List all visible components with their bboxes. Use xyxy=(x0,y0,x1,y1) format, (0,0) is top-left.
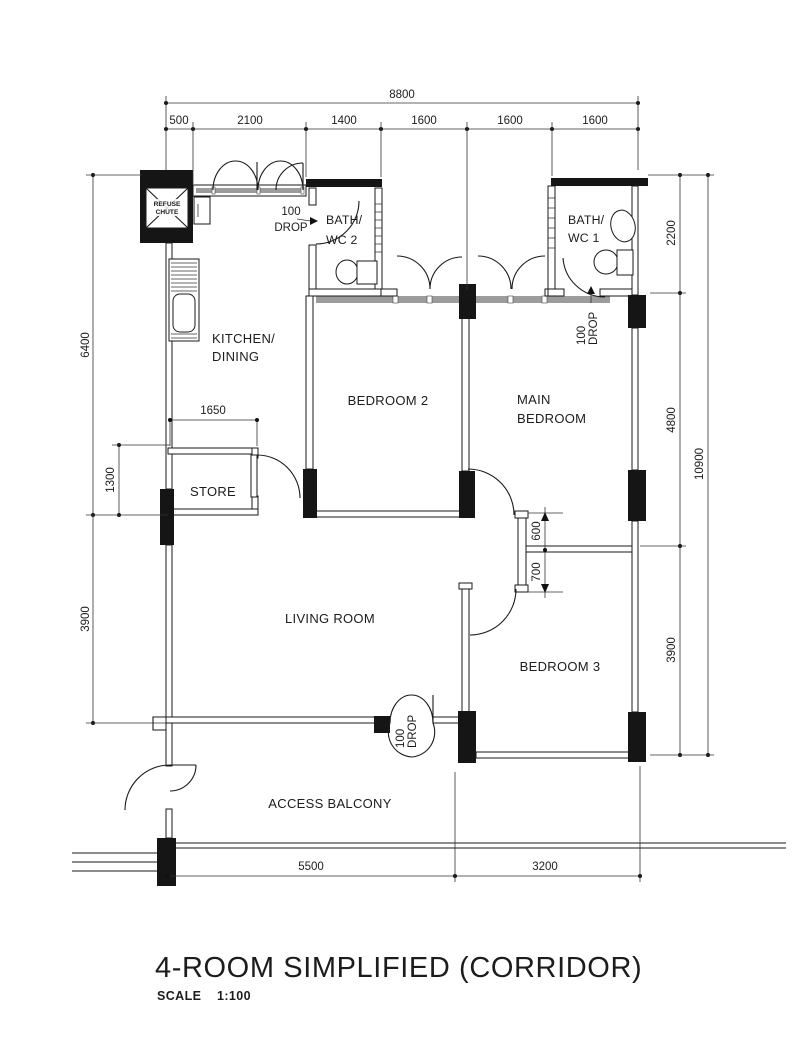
drop-living-line1: 100 xyxy=(395,729,407,748)
room-label-bedroom2: BEDROOM 2 xyxy=(348,393,429,408)
drop-annotation-bath1: 100 DROP xyxy=(576,286,600,345)
bedroom2-door-arc-left xyxy=(397,256,430,289)
bedroom3-door-arc-lower xyxy=(470,589,516,635)
drop-living-line2: DROP xyxy=(407,714,419,748)
dim-right-3900: 3900 xyxy=(666,637,678,663)
drop-kitchen-line1: 100 xyxy=(281,206,300,218)
bath2-toilet-icon xyxy=(336,260,377,284)
drop-bath1-line2: DROP xyxy=(588,311,600,345)
room-label-living: LIVING ROOM xyxy=(285,611,375,626)
dim-right-4800: 4800 xyxy=(666,407,678,433)
plan-title: 4-ROOM SIMPLIFIED (CORRIDOR) xyxy=(155,952,642,984)
dim-right: 2200 4800 3900 10900 xyxy=(640,173,714,757)
room-label-bath2-line2: WC 2 xyxy=(326,233,358,247)
bath1-toilet-icon xyxy=(594,250,633,275)
title-block: 4-ROOM SIMPLIFIED (CORRIDOR) SCALE 1:100 xyxy=(155,952,642,1003)
balcony-gate-arc-small xyxy=(170,765,196,791)
store-door-leaf xyxy=(251,455,257,497)
room-label-kitchen-line2: DINING xyxy=(212,349,259,364)
drop-annotation-kitchen: 100 DROP xyxy=(274,206,318,234)
balcony-gate-arc-large xyxy=(125,765,170,810)
drop-bath1-arrow-icon xyxy=(587,286,595,294)
dim-store: 1650 xyxy=(168,405,259,446)
room-label-main-bedroom-line1: MAIN xyxy=(517,392,551,407)
dim-top-seg-1600b: 1600 xyxy=(497,115,523,127)
refuse-chute-label-line1: REFUSE xyxy=(154,201,181,208)
dim-left: 6400 1300 3900 xyxy=(80,173,170,725)
dim-left-3900: 3900 xyxy=(80,606,92,632)
dim-door-600: 600 xyxy=(531,521,543,540)
dim-left-6400: 6400 xyxy=(80,332,92,358)
store-door-arc xyxy=(257,455,300,498)
plan-scale-label: SCALE xyxy=(157,989,201,1003)
room-label-bath1-line1: BATH/ xyxy=(568,213,605,227)
dim-store-1650: 1650 xyxy=(200,405,226,417)
plan-scale-value: 1:100 xyxy=(217,989,251,1003)
room-label-main-bedroom-line2: BEDROOM xyxy=(517,411,586,426)
dim-top-seg-1400: 1400 xyxy=(331,115,357,127)
floorplan-drawing: REFUSE CHUTE xyxy=(0,0,800,1060)
bedroom2-door-arc-right xyxy=(430,257,462,289)
drop-kitchen-line2: DROP xyxy=(274,222,308,234)
dim-right-10900: 10900 xyxy=(694,448,706,480)
fixtures xyxy=(169,208,639,341)
room-label-bedroom3: BEDROOM 3 xyxy=(520,659,601,674)
drop-annotation-living: 100 DROP xyxy=(395,714,419,748)
refuse-chute-label-line2: CHUTE xyxy=(156,209,179,216)
dim-top-seg-1600c: 1600 xyxy=(582,115,608,127)
dim-top-seg-500: 500 xyxy=(169,115,188,127)
main-bedroom-door-arc-right xyxy=(512,256,545,289)
room-label-bath2-line1: BATH/ xyxy=(326,213,363,227)
drop-bath1-line1: 100 xyxy=(576,326,588,345)
floorplan-page: REFUSE CHUTE xyxy=(0,0,800,1060)
main-bedroom-door-arc-left xyxy=(478,256,511,289)
kitchen-sink-icon xyxy=(169,259,199,341)
black-walls xyxy=(140,170,648,886)
dim-bottom: 5500 3200 xyxy=(166,766,642,882)
room-label-bath1-line2: WC 1 xyxy=(568,231,600,245)
dim-bottom-3200: 3200 xyxy=(532,861,558,873)
room-label-store: STORE xyxy=(190,484,236,499)
room-label-kitchen-line1: KITCHEN/ xyxy=(212,331,275,346)
drop-kitchen-arrow-icon xyxy=(310,217,318,225)
room-label-balcony: ACCESS BALCONY xyxy=(268,796,391,811)
dim-left-1300: 1300 xyxy=(105,467,117,493)
dim-right-2200: 2200 xyxy=(666,220,678,246)
dim-top-seg-2100: 2100 xyxy=(237,115,263,127)
dim-top-total: 8800 xyxy=(389,89,415,101)
dim-door-700: 700 xyxy=(531,562,543,581)
dim-bottom-5500: 5500 xyxy=(298,861,324,873)
dim-top-seg-1600a: 1600 xyxy=(411,115,437,127)
